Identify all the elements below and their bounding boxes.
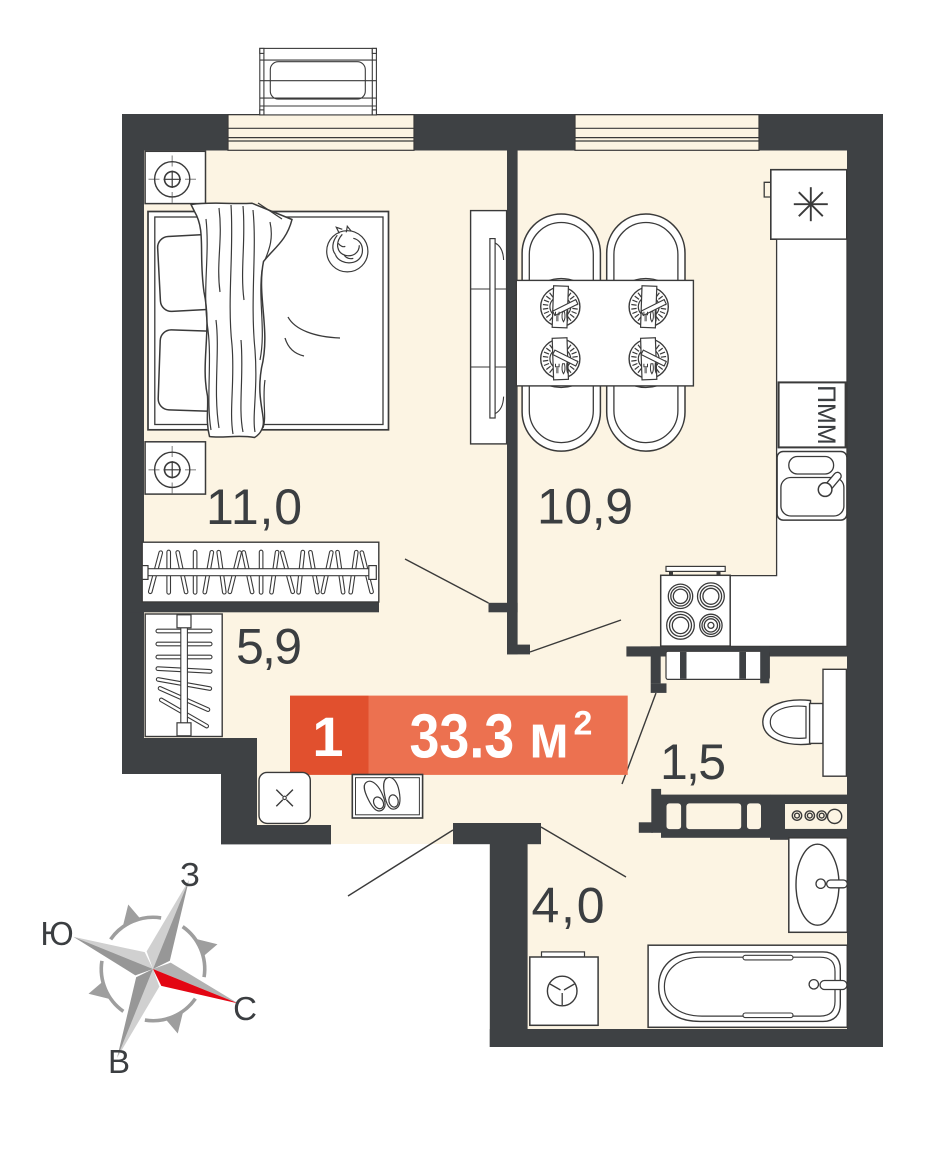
svg-text:2: 2 [574,705,593,743]
svg-text:В: В [108,1043,130,1080]
svg-text:10,9: 10,9 [537,479,633,535]
svg-text:33.3 м: 33.3 м [410,702,569,771]
svg-text:11,0: 11,0 [206,479,302,535]
svg-text:Ю: Ю [40,915,73,952]
svg-text:ПММ: ПММ [812,385,840,445]
svg-text:1: 1 [312,705,343,768]
svg-text:5,9: 5,9 [236,619,302,675]
svg-text:З: З [180,856,200,893]
svg-text:1,5: 1,5 [660,734,726,790]
svg-text:С: С [233,990,257,1027]
svg-text:4,0: 4,0 [532,878,605,934]
